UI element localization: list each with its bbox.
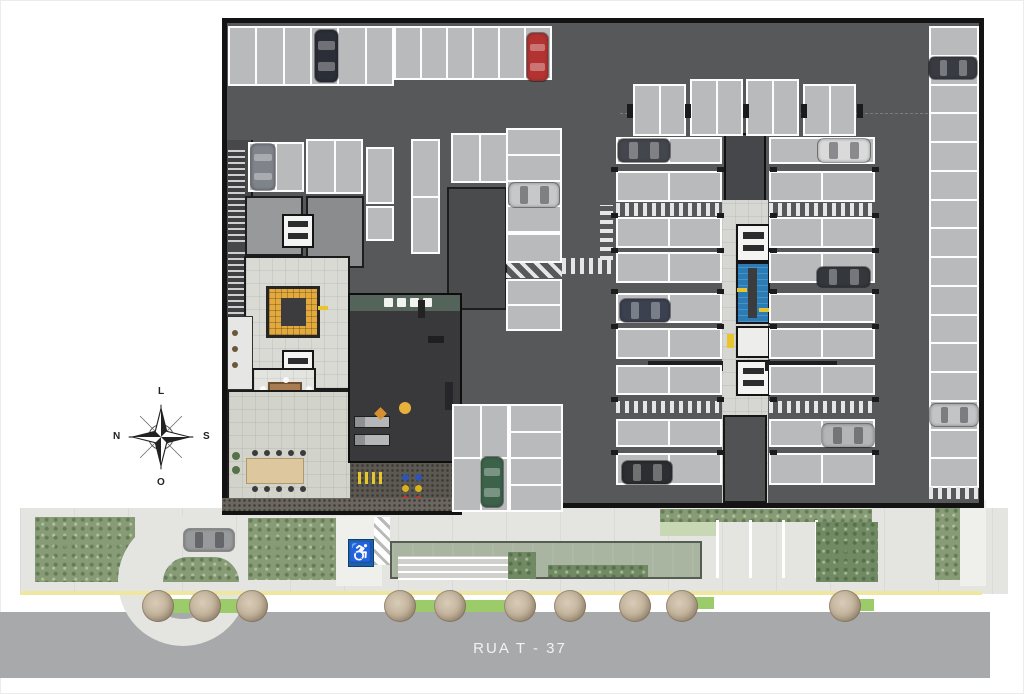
parking-space [511,486,561,511]
parking-space [771,139,821,162]
car [818,139,870,162]
staircase-core [281,298,306,326]
parking-space [670,455,720,483]
parking-space [413,141,438,200]
parking-space [931,28,977,55]
wall-segment [770,289,777,294]
wall-segment [872,289,879,294]
car-windshield [833,427,841,445]
lockers [384,298,393,307]
site-plan: RUA T - 37 ♿ ♿ [0,0,1024,694]
compass-top-label: L [158,386,164,397]
parking-space [508,306,560,329]
parking-space [823,173,873,200]
crosswalk-stripes [769,401,875,413]
parking-group [769,171,875,202]
wall-segment [611,289,618,294]
wall-segment [611,213,618,218]
parking-space [748,81,772,134]
wall-segment [770,248,777,253]
hedge [816,522,878,582]
wall-segment [872,450,879,455]
wall-segment [717,213,724,218]
street-tree [554,590,586,622]
parking-group [509,404,563,512]
wall-segment [611,324,618,329]
hedge-arc-center [163,557,239,582]
elevator [282,214,314,248]
compass-rose [123,399,199,475]
car-windshield [484,468,501,476]
car-windshield [530,63,546,71]
no-parking-hatch [374,517,390,565]
wall-segment [801,104,807,118]
parking-space [368,149,392,202]
parking-group [616,365,722,395]
car-windshield [850,142,859,160]
car [251,144,275,190]
car [315,30,338,82]
door-marking [727,334,734,348]
wall-segment [611,248,618,253]
car-windshield [629,142,637,160]
car [527,33,548,81]
parking-group [769,328,875,359]
parking-space [931,287,977,314]
elevator [736,224,770,262]
parking-group [411,196,440,254]
street-tree [829,590,861,622]
kitchen [227,316,253,390]
parking-space [500,28,524,78]
hedge [508,552,536,579]
car [622,461,672,484]
parking-space [771,421,821,445]
parking-space [670,295,720,321]
parking-space [396,28,420,78]
car-windshield [254,173,272,181]
car-windshield [941,407,949,424]
car-windshield [960,407,968,424]
planters [232,452,240,460]
street-name-label: RUA T - 37 [420,640,620,657]
wall-segment [857,104,863,118]
parking-space [931,143,977,170]
parking-space [481,135,507,181]
gym-lockers-strip [350,295,460,311]
parking-group [451,133,508,183]
stair-arrow [318,306,328,310]
parking-group [616,328,722,359]
stair-railing [748,268,757,318]
parking-space [670,330,720,357]
stair-marking [759,308,769,312]
accessibility-parking-icon: ♿ [348,539,374,567]
parking-space [823,330,873,357]
wall-segment [717,289,724,294]
crosswalk-stripes [616,401,722,413]
parking-space [454,459,480,510]
parking-space [670,173,720,200]
parking-space [413,198,438,252]
wall-segment [627,104,633,118]
parking-space [508,130,560,154]
wall-segment [717,324,724,329]
treadmill [354,434,390,446]
car [817,267,870,287]
parking-space [257,28,282,84]
terrace-chairs [252,450,258,456]
building-edge [222,511,462,515]
parking-space [339,28,364,84]
room-block [447,187,507,310]
parking-space [931,459,977,486]
street-tree [619,590,651,622]
parking-space [508,207,560,231]
wall-segment [872,213,879,218]
parking-space [454,406,480,457]
parking-group [769,293,875,323]
parking-space [931,114,977,141]
lawn [660,522,716,536]
car-windshield [854,427,863,445]
car-windshield [829,142,837,160]
car [184,529,234,551]
car-windshield [254,154,272,161]
car-windshield [940,60,948,77]
accessible-parking-space [506,233,562,263]
parking-group [411,139,440,202]
parking-space [277,144,302,190]
parking-space [931,229,977,256]
wall-segment [872,397,879,402]
compass-right-label: S [203,431,210,442]
street-tree [236,590,268,622]
car-windshield [520,186,528,204]
parking-group [803,84,856,136]
car-windshield [530,44,546,52]
kitchen-stools [232,330,238,336]
terrace-table [246,458,304,484]
wall-segment [717,248,724,253]
car-windshield [631,302,639,320]
wall-segment [717,450,724,455]
side-driveway [960,500,986,586]
parking-space [511,433,561,458]
parking-space [482,406,508,457]
parking-space [367,28,392,84]
parking-space [670,219,720,246]
parking-space [453,135,479,181]
wall-segment [685,104,691,118]
car-windshield [959,60,967,77]
parking-space [771,367,821,393]
car-windshield [318,62,336,71]
parking-space [661,86,685,134]
wall-segment [717,167,724,172]
gym-equipment [428,336,444,343]
tower-core-lower [723,415,767,503]
parking-group [616,419,722,447]
parking-space [831,86,855,134]
car-windshield [829,269,837,284]
car-windshield [650,142,659,160]
parking-space [618,367,668,393]
parking-space [635,86,659,134]
parking-space [670,367,720,393]
wall-segment [611,397,618,402]
street-tree [189,590,221,622]
wall-segment [770,397,777,402]
wall-segment [611,450,618,455]
parking-space [618,330,668,357]
parking-space [336,141,362,192]
gym-equipment [418,300,425,318]
parking-space [771,330,821,357]
parking-space [422,28,446,78]
parking-group [366,147,394,204]
parking-space [771,295,821,321]
wall-segment [717,397,724,402]
car-windshield [195,532,203,549]
hedge [935,508,961,580]
parking-group [616,252,722,283]
parking-space [931,373,977,400]
parking-space [368,208,392,239]
play-equipment [402,474,409,481]
parking-space [931,201,977,228]
wall-segment [770,213,777,218]
parking-group [746,79,799,136]
parking-space [771,254,821,281]
parking-space [771,455,821,483]
car [481,457,503,507]
parking-group [633,84,686,136]
hedge [248,518,345,580]
street-tree [666,590,698,622]
parking-space [931,344,977,371]
car-windshield [484,488,501,497]
parking-group [228,26,394,86]
parking-group [616,171,722,202]
parking-space [308,141,334,192]
no-parking-hatch [506,263,562,278]
parking-space [511,406,561,431]
compass-left-label: N [113,431,120,442]
parking-space [618,219,668,246]
parking-space [670,421,720,445]
compass-bottom-label: O [157,477,165,488]
parking-space [774,81,798,134]
car [618,139,670,162]
parking-group [769,453,875,485]
utility-room [736,326,770,358]
parking-space [771,173,821,200]
parking-space [718,81,742,134]
parking-group [616,217,722,248]
parking-space [931,172,977,199]
car-windshield [540,186,549,204]
wall-segment [743,104,749,118]
exercise-ball [399,402,411,414]
street-tree [142,590,174,622]
visitor-parking-lines [716,520,818,578]
parking-space [474,28,498,78]
car [930,404,978,426]
crosswalk-stripes [929,487,979,499]
parking-group [506,128,562,233]
crosswalk-stripes [562,258,612,274]
parking-space [230,28,255,84]
parking-space [285,28,310,84]
parking-group [769,365,875,395]
street-tree [504,590,536,622]
wall-segment [611,167,618,172]
parking-space [823,455,873,483]
car-windshield [318,41,336,49]
parking-space [670,139,720,162]
wall-segment [872,324,879,329]
car-windshield [651,302,660,320]
parking-group [690,79,743,136]
play-bars [358,472,384,484]
wall-segment [770,167,777,172]
parking-space [692,81,716,134]
wall-segment [872,167,879,172]
parking-group [366,206,394,241]
car [509,183,559,207]
parking-space [771,219,821,246]
parking-group [506,279,562,331]
parking-space [508,156,560,180]
crosswalk-stripes [769,203,875,216]
parking-space [508,281,560,304]
parking-space [823,219,873,246]
treadmill [354,416,390,428]
wall-segment [770,450,777,455]
car [620,299,670,322]
parking-group [306,139,363,194]
hedge [548,565,648,577]
parking-space [618,254,668,281]
tower-core-dark [724,133,766,203]
car [822,424,874,447]
parking-group [769,217,875,248]
car-windshield [215,532,224,549]
grass-strip [462,600,508,612]
parking-space [931,258,977,285]
stairs [228,150,245,242]
car-windshield [850,269,859,284]
parking-space [448,28,472,78]
terrace-floor [227,390,352,503]
parking-space [670,254,720,281]
crosswalk-stripes [616,203,722,216]
car [929,57,977,79]
parking-space [931,86,977,113]
parking-space [931,316,977,343]
wall-segment [872,248,879,253]
car-windshield [653,464,662,482]
parking-space [511,459,561,484]
parking-space [931,431,977,458]
car-windshield [633,464,641,482]
wall-segment [770,324,777,329]
stair-marking [737,288,747,292]
street-tree [434,590,466,622]
parking-space [823,367,873,393]
parking-space [618,173,668,200]
parking-space [805,86,829,134]
parking-space [618,421,668,445]
parking-space [823,295,873,321]
street-tree [384,590,416,622]
